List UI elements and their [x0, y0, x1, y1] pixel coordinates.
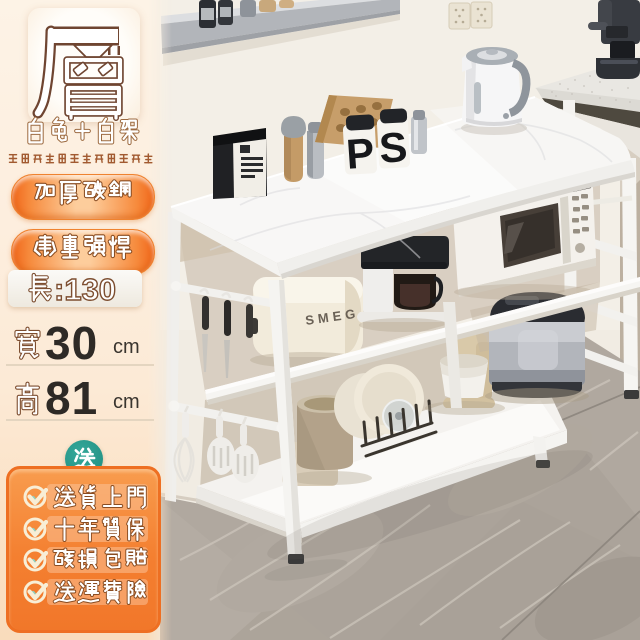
svg-text:P: P: [345, 129, 376, 178]
svg-text:S: S: [378, 123, 409, 172]
